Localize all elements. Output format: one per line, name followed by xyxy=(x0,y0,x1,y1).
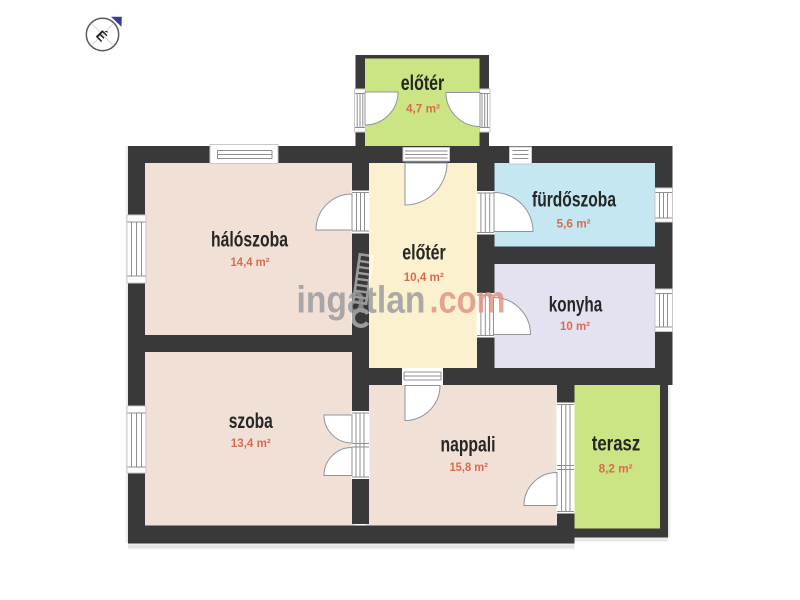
svg-text:szoba: szoba xyxy=(229,410,273,433)
svg-text:terasz: terasz xyxy=(592,433,641,456)
svg-text:15,8 m²: 15,8 m² xyxy=(449,460,488,474)
svg-text:előtér: előtér xyxy=(402,242,446,265)
svg-text:konyha: konyha xyxy=(549,294,603,317)
svg-text:5,6 m²: 5,6 m² xyxy=(557,217,591,231)
svg-text:hálószoba: hálószoba xyxy=(211,229,288,252)
svg-text:10,4 m²: 10,4 m² xyxy=(404,270,444,284)
svg-text:10 m²: 10 m² xyxy=(560,319,590,333)
svg-text:fürdőszoba: fürdőszoba xyxy=(532,189,616,212)
svg-text:4,7 m²: 4,7 m² xyxy=(406,102,440,116)
svg-text:nappali: nappali xyxy=(441,434,496,457)
svg-text:ingatlan: ingatlan xyxy=(297,280,426,322)
svg-text:8,2 m²: 8,2 m² xyxy=(599,462,633,476)
svg-text:13,4 m²: 13,4 m² xyxy=(231,436,271,450)
svg-text:14,4 m²: 14,4 m² xyxy=(231,255,270,269)
svg-text:.com: .com xyxy=(430,280,506,322)
svg-text:előtér: előtér xyxy=(401,72,445,95)
